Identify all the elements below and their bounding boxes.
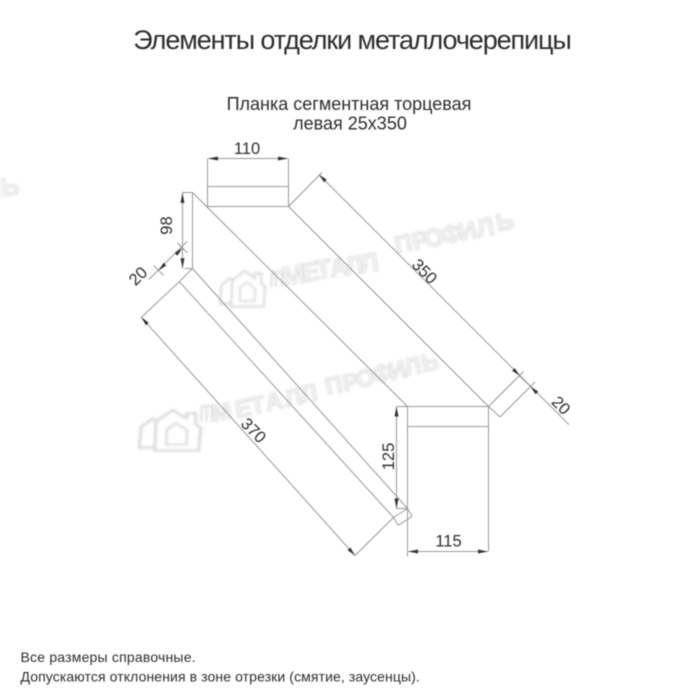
svg-text:Элементы отделки металлочерепи: Элементы отделки металлочерепицы [133,25,570,55]
svg-text:125: 125 [380,443,398,471]
svg-text:левая 25х350: левая 25х350 [293,114,407,134]
svg-text:Планка сегментная торцевая: Планка сегментная торцевая [227,94,472,114]
svg-text:Все размеры справочные.: Все размеры справочные. [21,649,196,665]
svg-text:Допускаются отклонения в зоне: Допускаются отклонения в зоне отрезки (с… [21,669,420,685]
svg-text:110: 110 [234,140,260,158]
svg-text:98: 98 [158,216,176,234]
svg-text:115: 115 [435,533,461,551]
